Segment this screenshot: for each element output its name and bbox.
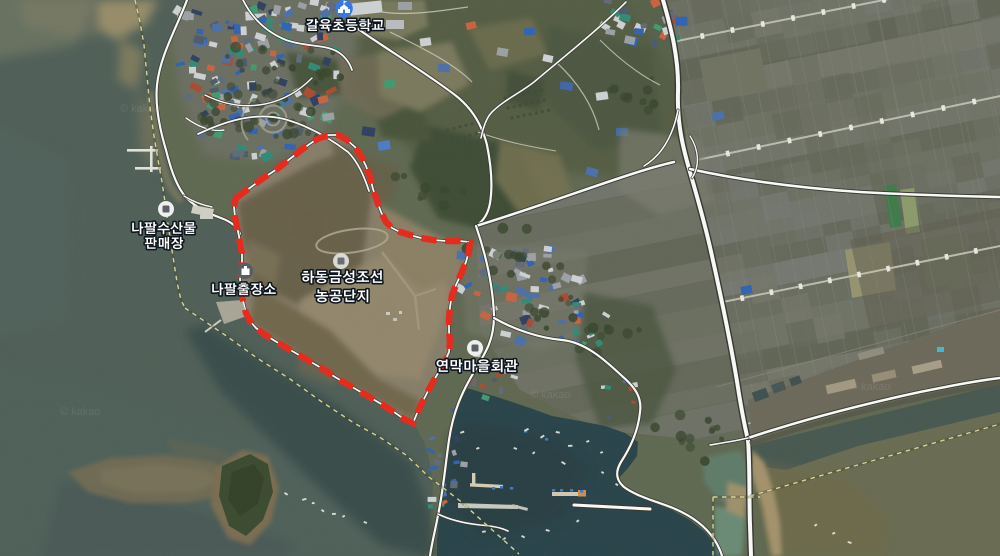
svg-text:© kakao: © kakao: [850, 381, 891, 393]
svg-text:© kakao: © kakao: [60, 406, 101, 418]
svg-text:© kakao: © kakao: [120, 103, 161, 115]
svg-text:© kakao: © kakao: [530, 389, 571, 401]
